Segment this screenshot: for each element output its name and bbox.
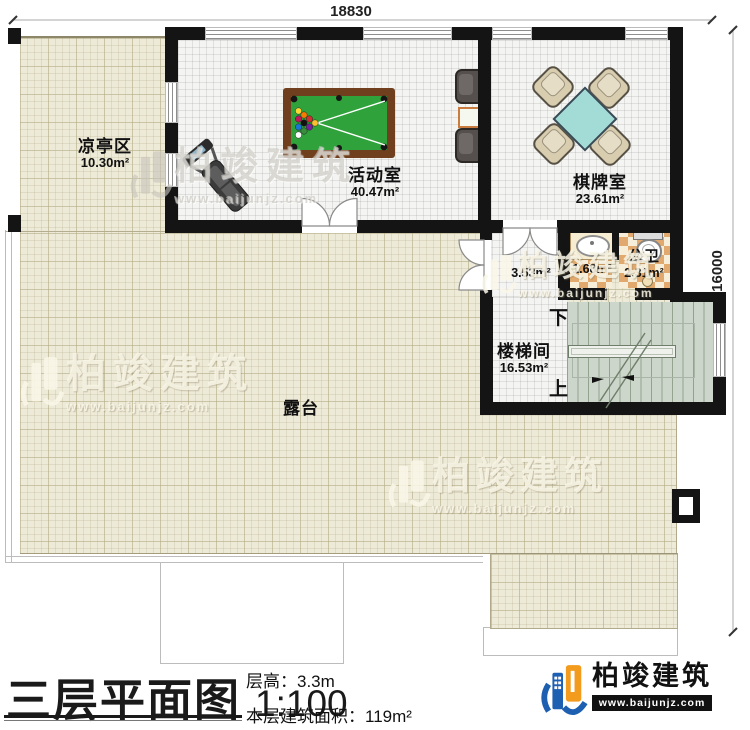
- window: [492, 27, 532, 40]
- hallway-floor: [492, 233, 558, 297]
- room-label-bath: 公卫 2.31m²: [612, 249, 676, 280]
- room-name: 露台: [261, 399, 341, 418]
- stair-down-label: 下: [549, 303, 568, 330]
- floor-height-value: 3.3m: [297, 672, 335, 691]
- window: [363, 27, 452, 40]
- area-label-wash: 1.68m²: [565, 262, 619, 276]
- terrace-lower-extension: [490, 553, 678, 629]
- area-label-hall: 3.53m²: [499, 266, 563, 280]
- floor-area-row: 本层建筑面积：119m²: [246, 702, 412, 727]
- brand-logo-icon: [538, 662, 588, 722]
- room-area: 23.61m²: [545, 192, 655, 207]
- pool-table: [283, 88, 395, 158]
- wall-segment: [165, 123, 178, 153]
- room-label-pavilion: 凉亭区 10.30m²: [55, 137, 155, 171]
- floor-height-label: 层高：: [246, 672, 297, 691]
- lower-roof-outline-right: [483, 627, 678, 656]
- brand-logo: 柏竣建筑 www.baijunjz.com: [538, 662, 712, 722]
- window: [205, 27, 297, 40]
- column: [8, 215, 21, 232]
- wall-segment: [480, 233, 492, 240]
- room-label-chess: 棋牌室 23.61m²: [545, 173, 655, 207]
- wall-segment: [713, 377, 726, 415]
- title-underline: [4, 715, 242, 718]
- room-name: 公卫: [612, 249, 676, 266]
- lower-roof-outline-left: [160, 562, 344, 664]
- room-label-activity: 活动室 40.47m²: [320, 166, 430, 200]
- floor-area-label: 本层建筑面积：: [246, 707, 365, 726]
- wall-segment: [558, 288, 607, 300]
- room-name: 棋牌室: [545, 173, 655, 192]
- wall-segment: [478, 40, 491, 220]
- floor-area-value: 119m²: [365, 707, 412, 726]
- window: [165, 153, 178, 187]
- column: [672, 489, 700, 523]
- plan-info: 层高：3.3m 本层建筑面积：119m²: [246, 667, 412, 730]
- window: [625, 27, 668, 40]
- dimension-right-label: 16000: [709, 250, 726, 292]
- room-label-stair: 楼梯间 16.53m²: [474, 342, 574, 376]
- window: [713, 323, 726, 377]
- parapet-line-left-outer: [5, 230, 6, 562]
- brand-name: 柏竣建筑: [592, 662, 712, 692]
- pavilion-terrace-divider: [5, 231, 165, 232]
- dimension-top-label: 18830: [330, 3, 372, 20]
- wall-segment: [165, 27, 205, 40]
- brand-site: www.baijunjz.com: [592, 695, 712, 711]
- room-label-terrace: 露台: [261, 399, 341, 418]
- wall-segment: [165, 40, 178, 82]
- pavilion-area: [20, 36, 165, 235]
- floor-plan: 18830 16000 凉亭区 10.30m² 活动室 40.47m² 棋牌室 …: [0, 0, 750, 730]
- wall-segment: [297, 27, 363, 40]
- room-name: 活动室: [320, 166, 430, 185]
- wall-segment: [713, 297, 726, 323]
- room-name: 凉亭区: [55, 137, 155, 156]
- window: [165, 82, 178, 123]
- room-area: 40.47m²: [320, 185, 430, 200]
- wall-segment: [480, 402, 726, 415]
- stair-up-label: 上: [549, 374, 568, 401]
- room-area: 2.31m²: [612, 266, 676, 280]
- room-name: 楼梯间: [474, 342, 574, 361]
- column: [8, 28, 21, 44]
- floor-height-row: 层高：3.3m: [246, 667, 412, 692]
- wall-segment: [480, 220, 503, 233]
- wall-segment: [452, 27, 492, 40]
- column-core: [679, 497, 693, 515]
- stair-handrail: [568, 345, 676, 358]
- wall-segment: [668, 27, 683, 40]
- parapet-line-left-inner: [11, 230, 12, 562]
- brand-text: 柏竣建筑 www.baijunjz.com: [592, 662, 712, 711]
- wall-segment: [635, 288, 683, 300]
- room-area: 10.30m²: [55, 156, 155, 171]
- sink-counter: [570, 230, 614, 260]
- title-underline-thin: [4, 720, 242, 721]
- sink-basin: [576, 235, 610, 257]
- wall-segment: [165, 220, 302, 233]
- sink-faucet: [590, 241, 594, 245]
- wall-segment: [532, 27, 625, 40]
- wall-segment: [357, 220, 480, 233]
- parapet-line-bottom-a: [5, 556, 483, 557]
